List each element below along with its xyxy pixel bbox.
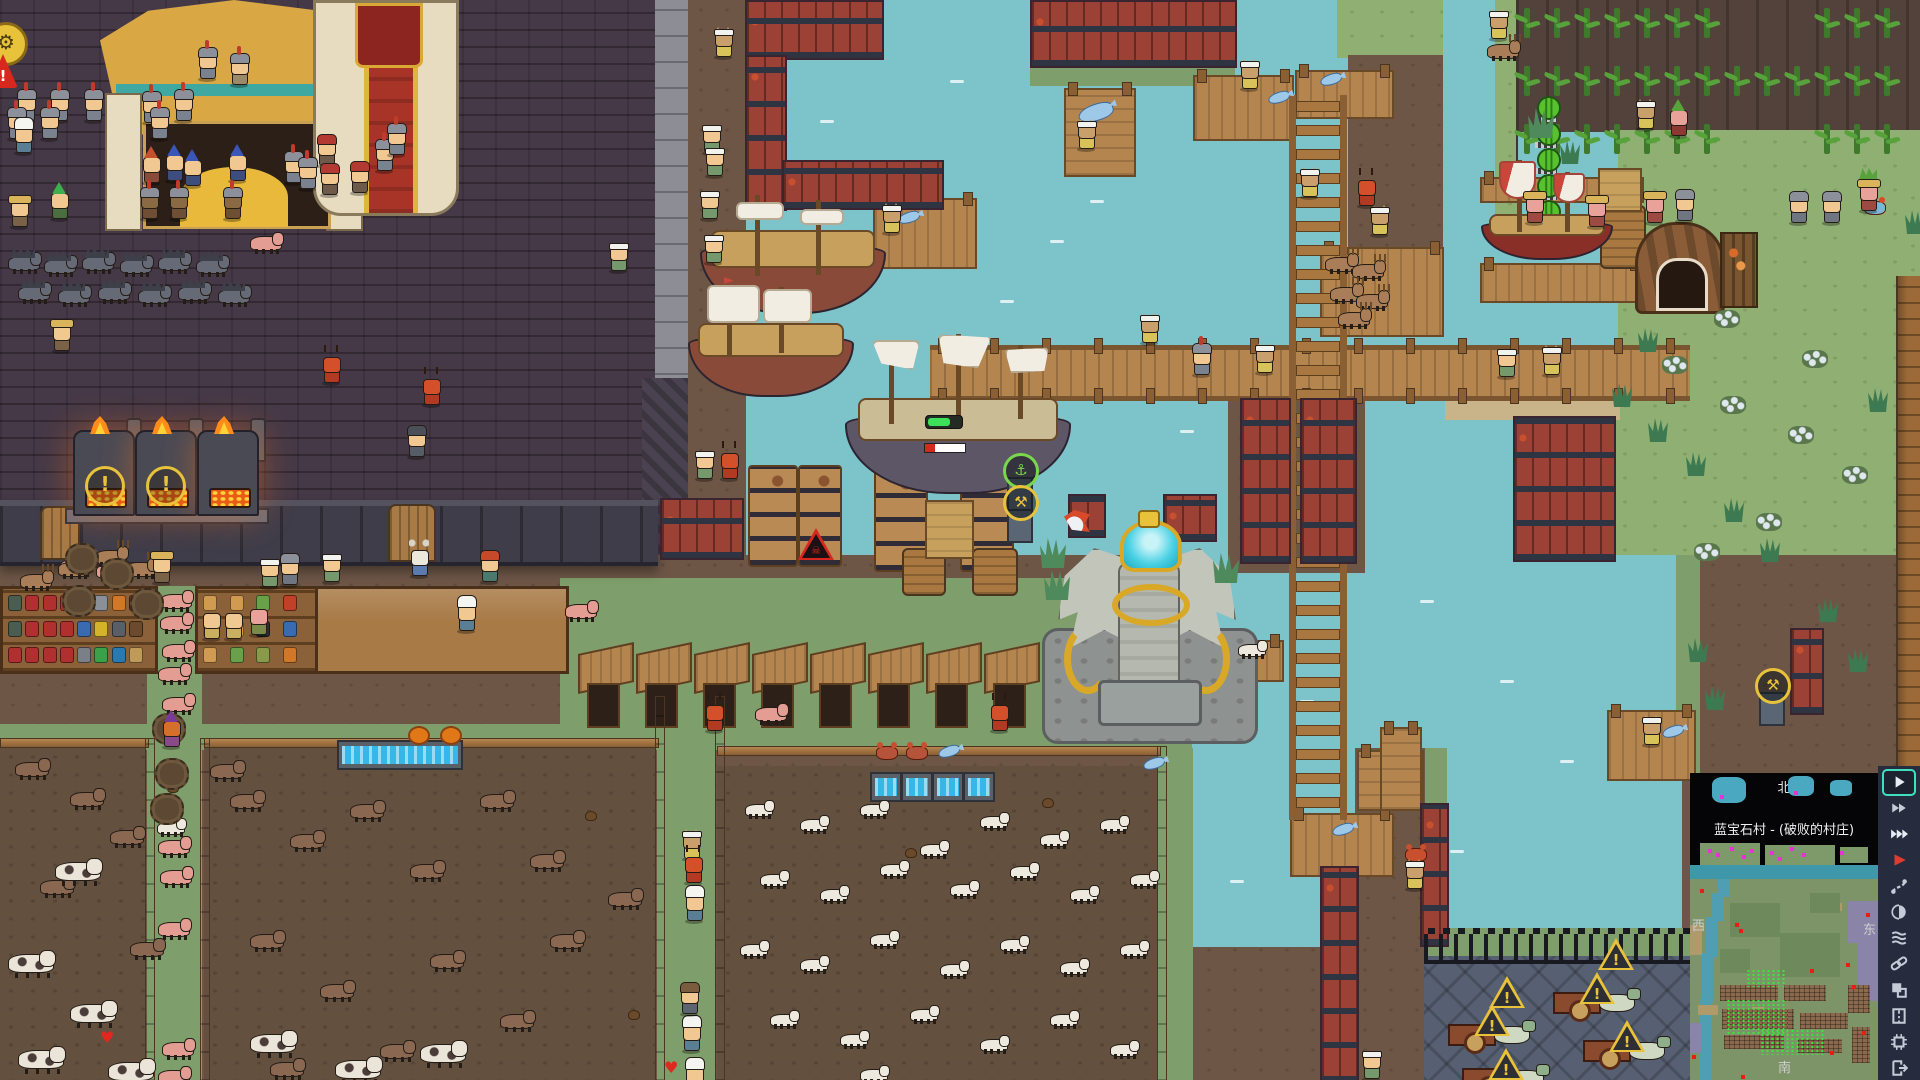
animal-pigb[interactable] [530,850,562,872]
corn-stalk [1854,66,1860,96]
animal-pigb[interactable] [15,758,47,780]
person-goatman[interactable] [408,543,430,579]
meat-drying-rack[interactable] [748,465,798,567]
animal-pigb[interactable] [550,930,582,952]
crab-trap-rack[interactable] [1030,0,1237,68]
fence [145,738,155,1080]
animal-wolf[interactable] [44,255,74,277]
barrel[interactable] [972,548,1018,596]
wrench-icon[interactable]: ⚒ [1755,668,1791,704]
animal-goat[interactable] [770,1010,796,1029]
animal-goat[interactable] [870,930,896,949]
corn-stalk [1554,66,1560,96]
animal-pigb[interactable] [290,830,322,852]
animal-goat[interactable] [800,955,826,974]
sidebar-button-exit-icon[interactable] [1883,1055,1915,1080]
animal-goat[interactable] [740,940,766,959]
animal-pigp[interactable] [158,1066,188,1080]
animal-cow[interactable] [8,950,52,978]
market-counter[interactable] [315,586,569,674]
sidebar-button-road-icon[interactable] [1883,1003,1915,1028]
person-grayhelm[interactable] [278,552,300,588]
ship-white-sails[interactable] [688,293,850,393]
person-owl[interactable] [221,186,243,222]
water-ripple [820,120,834,123]
person-catband[interactable] [1298,164,1320,200]
animal-pigb[interactable] [70,788,102,810]
animal-bramble[interactable] [155,758,189,790]
animal-wolf[interactable] [178,282,208,304]
corn-stalk [1704,8,1710,38]
person-soldier[interactable] [148,106,170,142]
animal-goat[interactable] [910,1005,936,1024]
dock[interactable] [1480,263,1644,303]
animal-pigp[interactable] [162,640,192,662]
animal-shelter[interactable] [810,648,862,726]
animal-pigp[interactable] [162,693,192,715]
animal-goat[interactable] [860,800,886,819]
animal-wolf[interactable] [58,285,88,307]
person-purpleimp[interactable] [160,714,182,750]
flower-patch [1802,350,1828,368]
person-straw[interactable] [150,550,172,586]
person-soldier[interactable] [172,88,194,124]
person-chef[interactable] [683,1060,705,1080]
bridge-post [1094,388,1103,404]
person-pigkid[interactable] [247,602,269,638]
flower-patch [1756,513,1782,531]
heart-icon: ♥ [100,1030,114,1046]
minimap-enemy-dot [1692,1055,1696,1059]
bridge-post [1666,388,1675,404]
fence [200,738,210,1080]
sidebar-button-layers-icon[interactable] [1883,977,1915,1002]
shop-item[interactable] [112,647,126,663]
person-whiteband[interactable] [320,549,342,585]
minimap-bld [1852,1027,1870,1063]
animal-goat[interactable] [1110,1040,1136,1059]
person-chef[interactable] [680,1018,702,1054]
animal-cow[interactable] [55,858,99,886]
meat-icon [906,746,928,760]
crate-stack[interactable] [925,500,974,559]
animal-pigb[interactable] [270,1058,302,1080]
person-pigstraw[interactable] [1585,194,1607,230]
bridge-post [1354,338,1363,354]
minimap-enemy-dot [1862,1031,1866,1035]
person-grayhelm[interactable] [1820,190,1842,226]
minimap-band [1840,847,1868,863]
person-miner[interactable] [678,981,700,1017]
person-soldier[interactable] [1190,342,1212,378]
wrench-icon[interactable]: ⚒ [1003,485,1039,521]
iron-spiked-fence [1424,934,1690,964]
sidebar-button-link-icon[interactable] [1883,951,1915,976]
sidebar-button-route-icon[interactable] [1883,874,1915,899]
animal-pigp[interactable] [160,590,190,612]
corn-stalk [1524,124,1530,154]
manure-pile [905,848,917,858]
person-kid[interactable] [222,606,244,642]
minimap-event-dot [1708,849,1712,853]
person-grayhelm[interactable] [1673,188,1695,224]
animal-deer[interactable] [1338,308,1368,329]
animal-pigb[interactable] [130,938,162,960]
crab-trap-rack[interactable] [1790,628,1824,715]
animal-goat[interactable] [950,880,976,899]
person-owl[interactable] [138,186,160,222]
animal-pigb[interactable] [608,888,640,910]
animal-goat[interactable] [1100,815,1126,834]
shop-item[interactable] [94,647,108,663]
shop-item[interactable] [8,621,22,637]
animal-goat[interactable] [1120,940,1146,959]
animal-pigp[interactable] [160,612,190,634]
pumpkin [408,726,430,745]
animal-cow[interactable] [108,1058,152,1080]
animal-pigb[interactable] [480,790,512,812]
crab-trap-rack[interactable] [1300,398,1357,564]
alert-exclamation-icon[interactable]: ! [146,466,186,506]
shop-item[interactable] [77,621,91,637]
person-demon[interactable] [420,372,442,408]
sidebar-button-waves-icon[interactable] [1883,926,1915,951]
shop-item[interactable] [43,621,57,637]
person-wizred[interactable] [140,150,162,186]
person-pigstraw[interactable] [1523,190,1545,226]
shop-item[interactable] [283,595,297,611]
animal-goat[interactable] [880,860,906,879]
animal-pigp[interactable] [158,918,188,940]
animal-wolf[interactable] [18,282,48,304]
person-demon[interactable] [320,350,342,386]
person-whiteband[interactable] [693,446,715,482]
sidebar-button-fast-forward-icon[interactable] [1883,796,1915,821]
bridge-post [1562,388,1571,404]
drying-frame[interactable] [1720,232,1758,308]
crab-trap-rack[interactable] [1240,398,1291,564]
water-trough[interactable] [337,740,463,770]
person-catband[interactable] [712,24,734,60]
shop-item[interactable] [112,621,126,637]
animal-pigb[interactable] [380,1040,412,1062]
person-wizblue[interactable] [181,153,203,189]
terrain-dirt2 [717,766,1157,1080]
person-whiteband[interactable] [1360,1046,1382,1080]
person-catband[interactable] [1238,56,1260,92]
flower-patch [1714,310,1740,328]
animal-wolf[interactable] [158,252,188,274]
person-redhat[interactable] [318,162,340,198]
animal-pigb[interactable] [230,790,262,812]
water-trough[interactable] [932,772,964,802]
animal-cow[interactable] [335,1056,379,1080]
minimap-enemy-dot [1830,1051,1834,1055]
heart-icon: ♥ [664,1060,678,1076]
person-catband[interactable] [1640,712,1662,748]
shop-item[interactable] [283,647,297,663]
person-catband[interactable] [1138,310,1160,346]
person-demon[interactable] [988,698,1010,734]
person-wizgreen[interactable] [48,186,70,222]
animal-deer[interactable] [1325,253,1355,274]
animal-cow[interactable] [18,1046,62,1074]
sidebar-button-cycle-icon[interactable] [1883,900,1915,925]
person-grayhelm[interactable] [1787,190,1809,226]
person-catband[interactable] [880,200,902,236]
animal-wolf[interactable] [218,285,248,307]
animal-goat[interactable] [840,1030,866,1049]
corn-stalk [1644,66,1650,96]
animal-pigp[interactable] [160,866,190,888]
animal-goat[interactable] [920,840,946,859]
water-trough[interactable] [901,772,933,802]
sidebar-button-play-red-icon[interactable] [1883,848,1915,873]
animal-goat[interactable] [1040,830,1066,849]
person-redhair[interactable] [478,549,500,585]
shop-item[interactable] [43,595,57,611]
animal-pigb[interactable] [410,860,442,882]
person-soldier[interactable] [38,106,60,142]
shop-item[interactable] [203,647,217,663]
water-ripple [950,80,964,83]
animal-goat[interactable] [940,960,966,979]
shop-item[interactable] [25,621,39,637]
animal-goat[interactable] [1070,885,1096,904]
animal-goat[interactable] [800,815,826,834]
minimap-gl [1746,969,1786,987]
ladder-rung [1296,317,1340,328]
animal-goat[interactable] [820,885,846,904]
minimap-event-dot [1730,847,1734,851]
person-demon[interactable] [718,446,740,482]
terrain-grass [1337,0,1443,58]
shop-item[interactable] [129,647,143,663]
water-ripple [1000,300,1014,303]
bridge-post [1458,338,1467,354]
corn-stalk [1824,8,1830,38]
crab-trap-rack[interactable] [1513,416,1616,562]
person-chef[interactable] [12,120,34,156]
person-soldier[interactable] [196,46,218,82]
person-demon[interactable] [682,850,704,886]
shop-item[interactable] [8,647,22,663]
person-pigstraw[interactable] [1643,190,1665,226]
animal-pigb[interactable] [320,980,352,1002]
ladder-rung [1296,677,1340,688]
water-trough[interactable] [963,772,995,802]
animal-goat[interactable] [1010,862,1036,881]
animal-bramble[interactable] [65,543,99,575]
warning-triangle-icon: ! [1474,1004,1510,1036]
animal-pigb[interactable] [500,1010,532,1032]
person-cornbundle[interactable] [1857,178,1879,214]
water-ripple [1420,600,1434,603]
shop-item[interactable] [283,621,297,637]
hook-icon[interactable]: ⚓ [1003,453,1039,489]
person-kid[interactable] [200,606,222,642]
animal-goat[interactable] [760,870,786,889]
person-straw[interactable] [8,194,30,230]
corn-stalk [1824,124,1830,154]
person-whiteband[interactable] [703,143,725,179]
shop-item[interactable] [230,647,244,663]
crab-trap-rack[interactable] [745,55,787,211]
corn-stalk [1884,124,1890,154]
minimap-map[interactable] [1690,773,1878,1080]
person-straw[interactable] [50,318,72,354]
shop-item[interactable] [94,621,108,637]
animal-pigp[interactable] [755,703,785,725]
shop-item[interactable] [60,647,74,663]
animal-goat[interactable] [1050,1010,1076,1029]
person-wizblue[interactable] [226,148,248,184]
minimap-event-dot [1770,851,1774,855]
animal-goat[interactable] [1238,640,1264,659]
furnace[interactable] [197,430,259,516]
animal-pigb[interactable] [210,760,242,782]
person-knight[interactable] [385,122,407,158]
person-horseknight[interactable] [228,52,250,88]
person-catband[interactable] [1075,116,1097,152]
person-redhat[interactable] [348,160,370,196]
alert-exclamation-icon[interactable]: ! [85,466,125,506]
person-chef[interactable] [683,888,705,924]
shop-item[interactable] [77,647,91,663]
person-whiteband[interactable] [698,186,720,222]
animal-pigb[interactable] [430,950,462,972]
animal-pigp[interactable] [250,232,280,254]
animal-bramble[interactable] [62,585,96,617]
crab-trap-rack[interactable] [660,498,744,560]
minimap-enemy-dot [1700,889,1704,893]
animal-pigp[interactable] [162,1038,192,1060]
minimap-event-dot [1778,857,1782,861]
person-whiteband[interactable] [1495,344,1517,380]
person-demon[interactable] [703,698,725,734]
animal-bramble[interactable] [100,558,134,590]
shop-item[interactable] [94,595,108,611]
animal-wolf[interactable] [196,255,226,277]
animal-cow[interactable] [70,1000,114,1028]
animal-deer[interactable] [20,570,50,591]
animal-wolf[interactable] [82,252,112,274]
corn-stalk [1824,66,1830,96]
animal-pigp[interactable] [158,663,188,685]
person-catband[interactable] [1403,856,1425,892]
person-catband[interactable] [1540,342,1562,378]
animal-pigp[interactable] [565,600,595,622]
ladder-rung [1296,605,1340,616]
corn-stalk [1854,124,1860,154]
animal-shelter[interactable] [578,648,630,726]
shop-item[interactable] [25,647,39,663]
meat-icon [876,746,898,760]
animal-goat[interactable] [1130,870,1156,889]
shop-item[interactable] [129,621,143,637]
corn-stalk [1854,8,1860,38]
corn-stalk [1614,8,1620,38]
ladder-rung [1296,653,1340,664]
minimap-dg [1810,893,1840,913]
animal-deer[interactable] [1487,40,1517,61]
corn-stalk [1734,66,1740,96]
corn-stalk [1554,8,1560,38]
animal-wolf[interactable] [98,282,128,304]
crab-trap-rack[interactable] [745,0,884,60]
minimap-isl [1712,777,1746,803]
person-grayhat[interactable] [405,424,427,460]
person-soldier[interactable] [82,88,104,124]
animal-goat[interactable] [980,812,1006,831]
water-ripple [1450,850,1464,853]
shop-item[interactable] [8,595,22,611]
animal-goat[interactable] [745,800,771,819]
bridge-post [1406,338,1415,354]
animal-cow[interactable] [250,1030,294,1058]
person-catband[interactable] [1634,96,1656,132]
animal-goat[interactable] [1060,958,1086,977]
person-whiteband[interactable] [258,554,280,590]
animal-pigb[interactable] [110,826,142,848]
person-demon[interactable] [1355,173,1377,209]
person-catband[interactable] [1487,6,1509,42]
shop-item[interactable] [60,621,74,637]
minimap-panel[interactable]: 北 蓝宝石村 - (破败的村庄) 西 东 南 [1690,773,1878,1080]
shop-item[interactable] [112,595,126,611]
winged-statue-monument[interactable] [1072,532,1222,717]
red-alert-triangle-icon[interactable]: ! [0,54,18,88]
animal-pigb[interactable] [350,800,382,822]
animal-shelter[interactable] [868,648,920,726]
sidebar-button-play-icon[interactable] [1883,770,1915,795]
ladder-rung [1296,701,1340,712]
animal-wolf[interactable] [8,252,38,274]
animal-goat[interactable] [980,1035,1006,1054]
water-ripple [1090,200,1104,203]
shop-item[interactable] [43,647,57,663]
animal-pigb[interactable] [250,930,282,952]
warning-triangle-icon: ! [1598,938,1634,970]
animal-goat[interactable] [1000,935,1026,954]
minimap-river [1706,917,1717,957]
shop-item[interactable] [256,647,270,663]
crab-trap-rack[interactable] [1320,866,1359,1080]
person-whiteband[interactable] [702,230,724,266]
animal-shelter[interactable] [926,648,978,726]
animal-cow[interactable] [420,1040,464,1068]
person-chef[interactable] [455,598,477,634]
sidebar-button-chip-icon[interactable] [1883,1029,1915,1054]
animal-pigp[interactable] [158,836,188,858]
ladder-rung [1296,221,1340,232]
shop-item[interactable] [25,595,39,611]
sidebar-button-fastest-forward-icon[interactable] [1883,822,1915,847]
person-owl[interactable] [167,186,189,222]
animal-wolf[interactable] [138,285,168,307]
animal-bramble[interactable] [130,588,164,620]
animal-wolf[interactable] [120,255,150,277]
hide-tent[interactable] [1635,222,1725,314]
manure-pile [1042,798,1054,808]
water-trough[interactable] [870,772,902,802]
person-whiteband[interactable] [607,238,629,274]
animal-bramble[interactable] [150,793,184,825]
animal-goat[interactable] [860,1065,886,1080]
dock[interactable] [1380,727,1422,811]
person-cornhead[interactable] [1667,103,1689,139]
person-catband[interactable] [1253,340,1275,376]
